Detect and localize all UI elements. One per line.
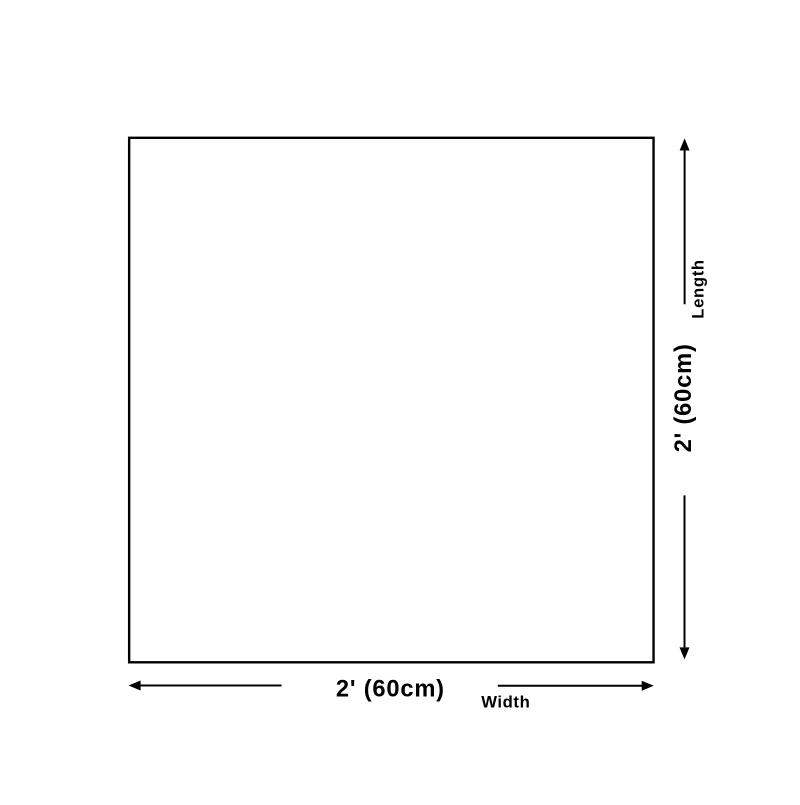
- svg-text:Width: Width: [481, 693, 530, 712]
- svg-text:Length: Length: [689, 259, 708, 319]
- svg-text:2' (60cm): 2' (60cm): [671, 343, 697, 452]
- svg-text:2' (60cm): 2' (60cm): [336, 677, 445, 703]
